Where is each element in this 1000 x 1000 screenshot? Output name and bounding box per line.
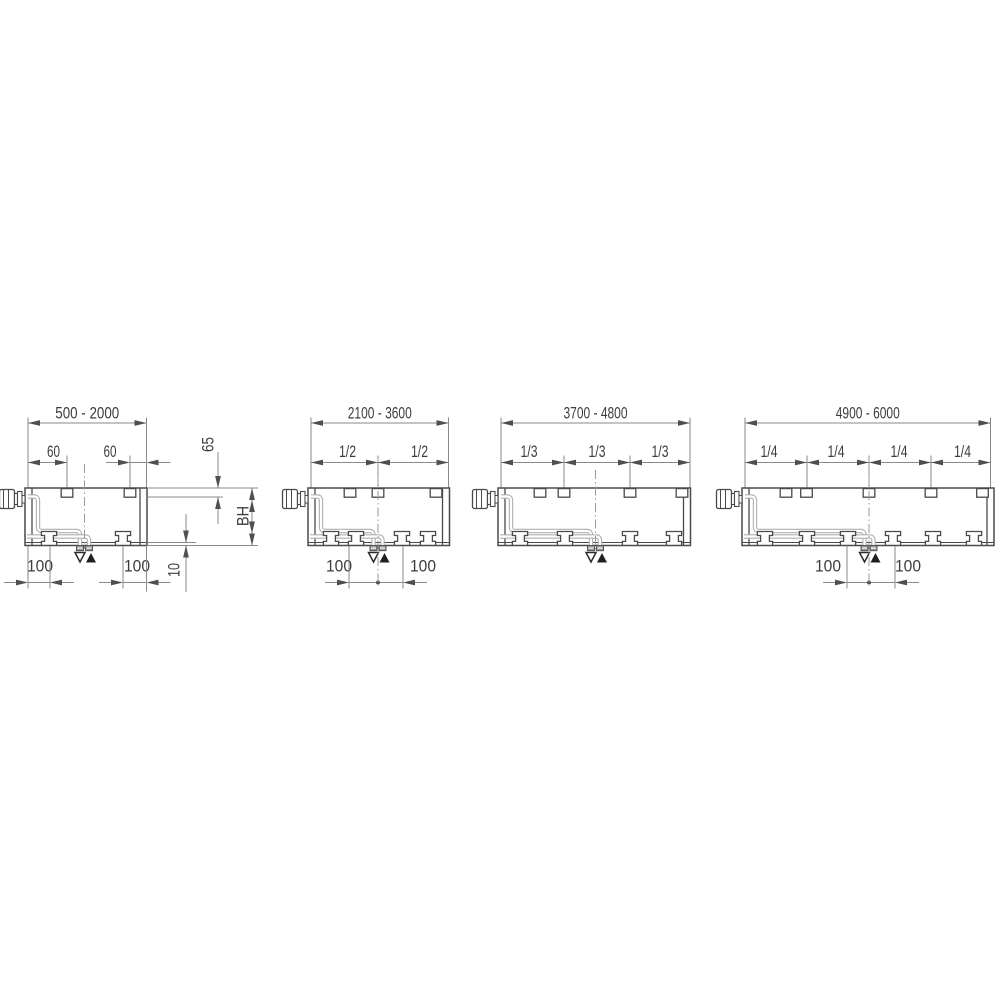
build-height-label: BH: [235, 506, 253, 526]
radiator-dimension-diagram-canvas: 500 - 2000606010010065BH102100 - 36001/2…: [0, 0, 1000, 1000]
flow-triangle-icon: [86, 553, 96, 563]
fraction-label: 1/2: [411, 443, 428, 461]
radiator-diagram-range-4900-6000: 4900 - 60001/41/41/41/4100100: [717, 405, 995, 589]
wall-bracket-tab: [558, 489, 570, 498]
length-range-label: 4900 - 6000: [836, 405, 900, 423]
length-range-label: 500 - 2000: [55, 405, 119, 423]
height-annotations: 65BH10: [147, 437, 259, 592]
thermostat-valve: [283, 490, 309, 509]
bottom-connection: [586, 546, 607, 563]
wall-bracket-tab: [430, 489, 442, 498]
thermostat-valve: [717, 490, 743, 509]
return-triangle-icon: [75, 553, 85, 563]
wall-bracket-tab: [61, 489, 73, 498]
tab-offset-label: 60: [104, 443, 117, 461]
return-triangle-icon: [860, 553, 870, 563]
tab-offset-label: 60: [47, 443, 60, 461]
return-triangle-icon: [369, 553, 379, 563]
flow-triangle-icon: [380, 553, 390, 563]
fraction-label: 1/3: [589, 443, 606, 461]
wall-bracket-tab: [780, 489, 792, 498]
top-offset-label: 65: [200, 437, 218, 452]
fraction-label: 1/4: [954, 443, 971, 461]
fraction-label: 1/4: [761, 443, 778, 461]
fraction-label: 1/4: [828, 443, 845, 461]
foot-offset-label: 100: [410, 558, 436, 576]
length-range-label: 2100 - 3600: [348, 405, 412, 423]
bottom-connection: [75, 546, 96, 563]
fraction-label: 1/4: [891, 443, 908, 461]
wall-bracket-tab: [676, 489, 688, 498]
wall-bracket-tab: [925, 489, 937, 498]
bottom-connection: [860, 546, 881, 563]
length-range-label: 3700 - 4800: [564, 405, 628, 423]
foot-offset-label: 100: [326, 558, 352, 576]
foot-offset-label: 100: [27, 558, 53, 576]
foot-offset-label: 100: [815, 558, 841, 576]
wall-bracket-tab: [624, 489, 636, 498]
radiator-diagram-range-500-2000: 500 - 2000606010010065BH10: [0, 405, 258, 593]
technical-drawing-page: 500 - 2000606010010065BH102100 - 36001/2…: [0, 0, 1000, 1000]
wall-bracket-tab: [344, 489, 356, 498]
wall-bracket-tab: [124, 489, 136, 498]
radiator-diagram-range-2100-3600: 2100 - 36001/21/2100100: [283, 405, 450, 589]
wall-bracket-tab: [977, 489, 989, 498]
foot-offset-label: 100: [895, 558, 921, 576]
wall-bracket-tab: [801, 489, 813, 498]
radiator-diagram-range-3700-4800: 3700 - 48001/31/31/3: [473, 405, 691, 563]
flow-triangle-icon: [597, 553, 607, 563]
flow-triangle-icon: [871, 553, 881, 563]
fraction-label: 1/3: [652, 443, 669, 461]
bottom-connection: [369, 546, 390, 563]
wall-bracket-tab: [534, 489, 546, 498]
fraction-label: 1/2: [339, 443, 356, 461]
thermostat-valve: [0, 490, 25, 509]
rail-height-label: 10: [166, 563, 184, 577]
return-triangle-icon: [586, 553, 596, 563]
fraction-label: 1/3: [521, 443, 538, 461]
thermostat-valve: [473, 490, 499, 509]
